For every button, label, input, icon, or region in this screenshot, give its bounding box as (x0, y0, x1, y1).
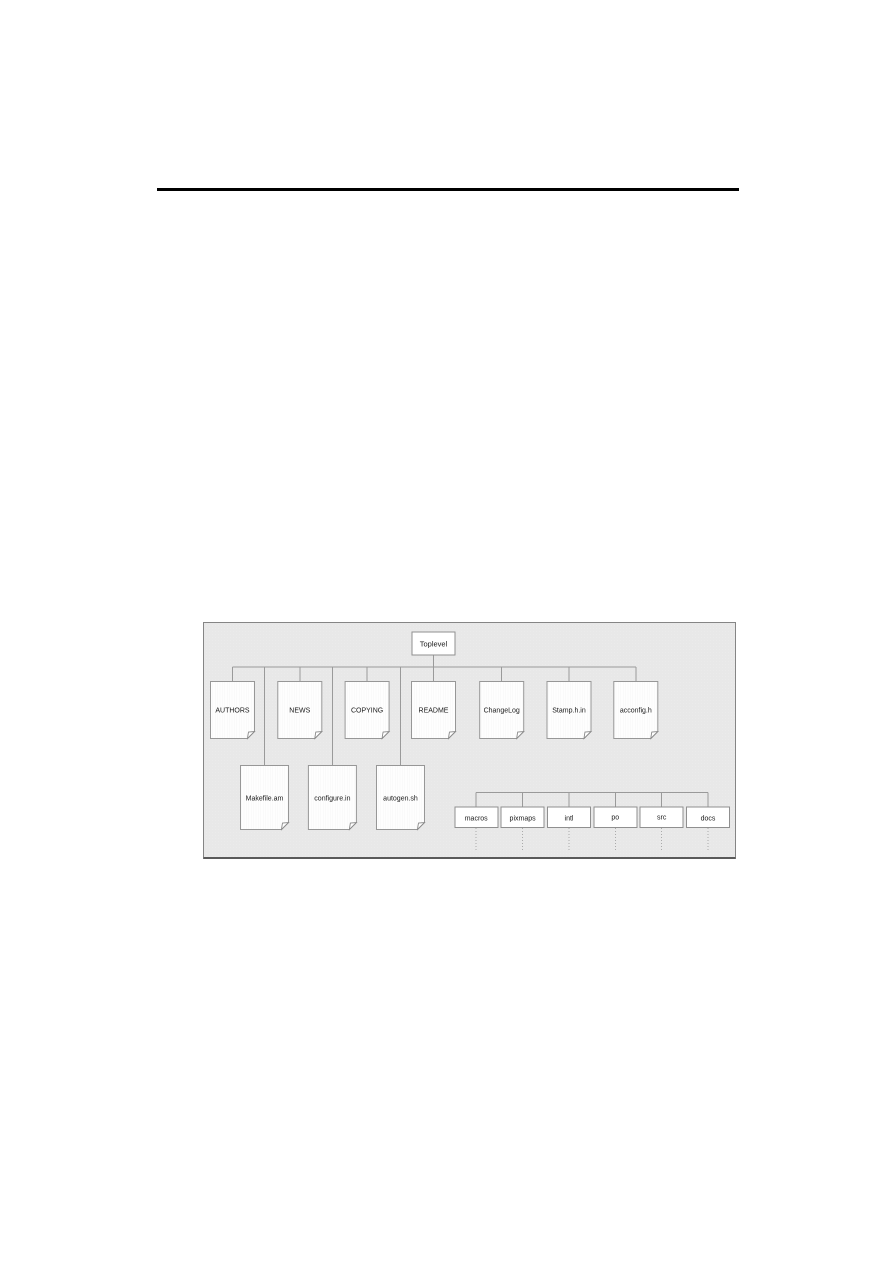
svg-text:po: po (611, 814, 619, 821)
svg-text:autogen.sh: autogen.sh (383, 796, 418, 803)
svg-text:macros: macros (465, 815, 488, 822)
svg-text:acconfig.h: acconfig.h (620, 708, 652, 715)
svg-text:NEWS: NEWS (289, 708, 310, 715)
svg-text:docs: docs (701, 815, 716, 822)
svg-text:AUTHORS: AUTHORS (215, 708, 250, 715)
svg-text:COPYING: COPYING (351, 708, 383, 715)
svg-text:ChangeLog: ChangeLog (484, 708, 520, 715)
svg-text:Toplevel: Toplevel (420, 640, 448, 649)
svg-text:configure.in: configure.in (314, 796, 350, 803)
svg-text:README: README (419, 708, 449, 715)
svg-text:Stamp.h.in: Stamp.h.in (552, 708, 586, 715)
svg-text:intl: intl (565, 815, 574, 822)
svg-text:Makefile.am: Makefile.am (246, 796, 284, 803)
svg-text:src: src (657, 814, 667, 821)
svg-text:pixmaps: pixmaps (510, 815, 537, 822)
